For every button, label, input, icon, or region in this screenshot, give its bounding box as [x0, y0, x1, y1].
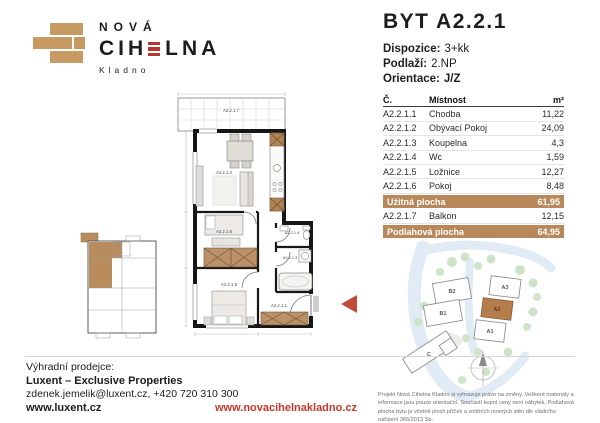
table-row: A2.2.1.2 Obývací Pokoj 24,09 [383, 122, 564, 136]
table-header: Č. Místnost m² [383, 93, 564, 107]
table-row: A2.2.1.3 Koupelna 4,3 [383, 136, 564, 150]
legal-disclaimer: Projekt Nová Cihelna Kladno si vyhrazuje… [378, 391, 575, 423]
room-name: Balkon [429, 211, 522, 221]
balcony-label: A2.2.1.7 [223, 108, 240, 113]
unit-title: BYT A2.2.1 [383, 10, 507, 34]
room-area: 12,27 [522, 167, 564, 177]
col-no: Č. [383, 95, 429, 105]
entrance-arrow-icon [341, 295, 357, 313]
small-room-label: A2.2.1.6 [216, 229, 233, 234]
bathroom-label: A2.2.1.3 [283, 255, 298, 260]
floor-plan: A2.2.1.7 [60, 85, 375, 357]
hall-wardrobe [261, 312, 308, 325]
room-name: Pokoj [429, 181, 522, 191]
site-plan: B2 B1 A3 A2 A1 C [388, 236, 566, 404]
agency-website-link[interactable]: www.luxent.cz [26, 402, 238, 416]
agency-name: Luxent – Exclusive Properties [26, 375, 238, 389]
brand-e-bars-icon [148, 42, 160, 57]
brand-city: Kladno [99, 65, 220, 75]
room-table: Č. Místnost m² A2.2.1.1 Chodba 11,22 A2.… [383, 93, 564, 239]
room-no: A2.2.1.4 [383, 152, 429, 162]
room-no: A2.2.1.5 [383, 167, 429, 177]
building-label-a3: A3 [502, 285, 509, 291]
footer-contact: Výhradní prodejce: Luxent – Exclusive Pr… [26, 361, 238, 415]
room-no: A2.2.1.6 [383, 181, 429, 191]
wc-label: A2.2.1.4 [285, 230, 300, 235]
spec-podlazi: Podlaží:2.NP [383, 57, 507, 72]
room-area: 1,59 [522, 152, 564, 162]
brand-name-main: CIH LNA [99, 37, 220, 61]
table-row: A2.2.1.6 Pokoj 8,48 [383, 179, 564, 193]
room-no: A2.2.1.2 [383, 123, 429, 133]
bedroom-label: A2.2.1.5 [221, 282, 238, 287]
room-name: Wc [429, 152, 522, 162]
building-label-a2: A2 [494, 307, 501, 313]
building-label-a1: A1 [487, 329, 494, 335]
brick-logo-icon [33, 23, 85, 65]
room-area: 4,3 [522, 138, 564, 148]
table-row-balcony: A2.2.1.7 Balkon 12,15 [383, 209, 564, 223]
room-no: A2.2.1.7 [383, 211, 429, 221]
building-label-c: C [427, 352, 431, 358]
room-area: 12,15 [522, 211, 564, 221]
table-row: A2.2.1.5 Ložnice 12,27 [383, 165, 564, 179]
project-website-link[interactable]: www.novacihelnakladno.cz [215, 402, 357, 414]
room-area: 24,09 [522, 123, 564, 133]
spec-orientace: Orientace:J/Z [383, 72, 507, 87]
floor-overview [81, 233, 156, 338]
living-room-label: A2.2.1.2 [216, 170, 233, 175]
agency-contact[interactable]: zdenek.jemelik@luxent.cz, +420 720 310 3… [26, 388, 238, 402]
room-name: Chodba [429, 109, 522, 119]
hall-label: A2.2.1.1 [271, 303, 288, 308]
room-name: Obývací Pokoj [429, 123, 522, 133]
room-no: A2.2.1.1 [383, 109, 429, 119]
brand-logo: NOVÁ CIH LNA Kladno [33, 13, 220, 75]
room-name: Ložnice [429, 167, 522, 177]
building-label-b1: B1 [440, 311, 447, 317]
room-no: A2.2.1.3 [383, 138, 429, 148]
spec-dispozice: Dispozice:3+kk [383, 42, 507, 57]
col-room: Místnost [429, 95, 522, 105]
room-area: 8,48 [522, 181, 564, 191]
room-name: Koupelna [429, 138, 522, 148]
exclusive-seller-label: Výhradní prodejce: [26, 361, 238, 375]
brand-name-top: NOVÁ [99, 20, 220, 34]
apartment-sheet: NOVÁ CIH LNA Kladno BYT A2.2.1 Dispozice… [0, 0, 600, 423]
footer-divider [25, 356, 575, 357]
kitchen-counter [270, 133, 284, 211]
table-row: A2.2.1.1 Chodba 11,22 [383, 107, 564, 121]
building-label-b2: B2 [449, 289, 456, 295]
col-area: m² [522, 95, 564, 105]
table-row: A2.2.1.4 Wc 1,59 [383, 151, 564, 165]
unit-header: BYT A2.2.1 Dispozice:3+kk Podlaží:2.NP O… [383, 10, 507, 87]
room-area: 11,22 [522, 109, 564, 119]
usable-area-row: Užitná plocha 61,95 [383, 195, 564, 209]
balcony-area: A2.2.1.7 [178, 98, 285, 131]
